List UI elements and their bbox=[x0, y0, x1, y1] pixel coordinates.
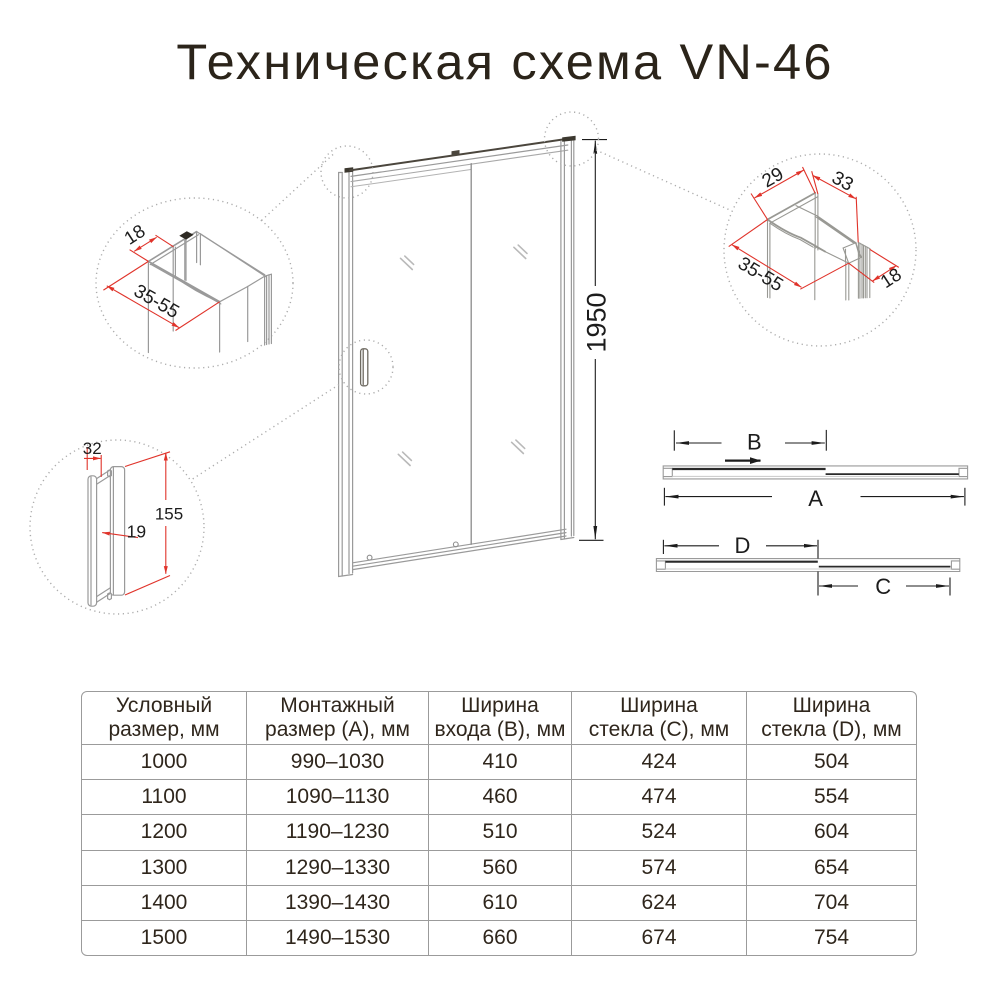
svg-text:C: C bbox=[875, 574, 891, 599]
svg-text:33: 33 bbox=[828, 167, 857, 195]
svg-text:35-55: 35-55 bbox=[130, 281, 183, 323]
svg-text:19: 19 bbox=[127, 521, 146, 541]
svg-text:A: A bbox=[808, 486, 823, 511]
svg-text:B: B bbox=[747, 430, 762, 455]
svg-text:35-55: 35-55 bbox=[734, 253, 786, 296]
svg-text:32: 32 bbox=[83, 439, 102, 458]
svg-text:D: D bbox=[735, 533, 751, 558]
svg-text:1950: 1950 bbox=[582, 292, 612, 352]
svg-text:18: 18 bbox=[876, 263, 905, 292]
svg-text:155: 155 bbox=[155, 505, 183, 524]
svg-text:29: 29 bbox=[759, 164, 788, 193]
